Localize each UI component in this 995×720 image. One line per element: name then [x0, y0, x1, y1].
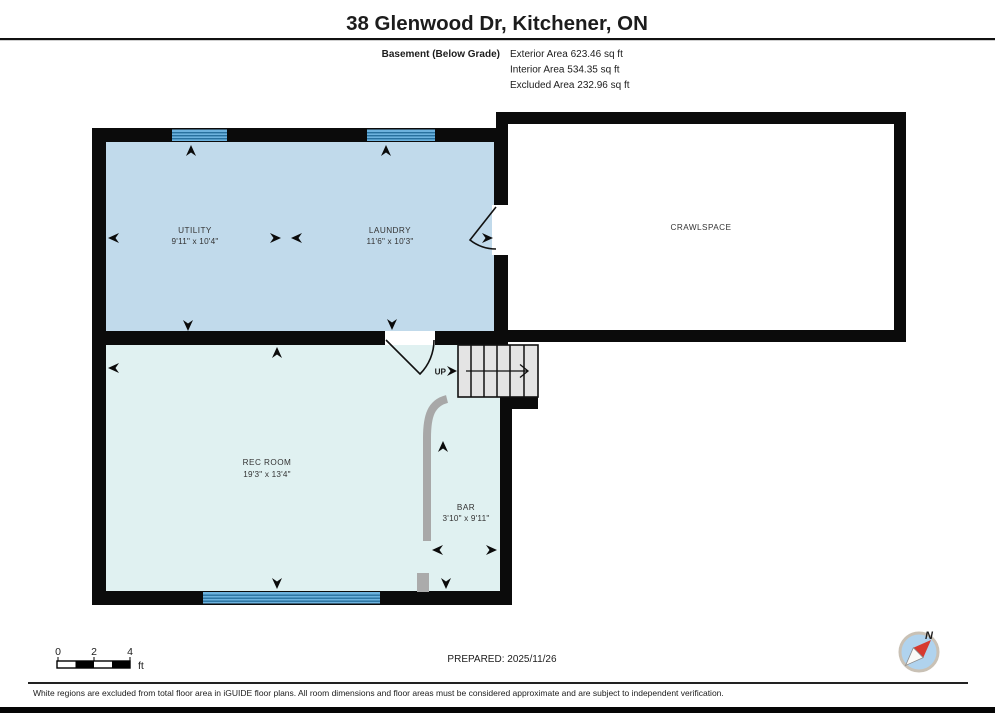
page-title: 38 Glenwood Dr, Kitchener, ON [346, 12, 648, 35]
room-label-bar: BAR [457, 503, 475, 512]
disclaimer-text: White regions are excluded from total fl… [33, 688, 724, 698]
floor-plan-page: 38 Glenwood Dr, Kitchener, ON Basement (… [0, 0, 995, 720]
room-label-laundry: LAUNDRY [369, 226, 411, 235]
prepared-date: PREPARED: 2025/11/26 [447, 654, 557, 665]
floor-label: Basement (Below Grade) [382, 49, 500, 60]
north-label: N [925, 630, 934, 642]
laundry-window [367, 130, 435, 142]
room-dims-laundry: 11'6" x 10'3" [367, 237, 414, 246]
compass: N [900, 630, 938, 671]
scale-tick-4: 4 [127, 646, 133, 658]
rec-room-floor [106, 345, 500, 591]
stairs [458, 345, 538, 397]
floor-plan: UTILITY 9'11" x 10'4" LAUNDRY 11'6" x 10… [92, 112, 906, 605]
utility-window [172, 130, 227, 142]
footer-divider [28, 682, 968, 684]
scale-bar: 0 2 4 ft [55, 646, 144, 672]
header-divider [0, 38, 995, 40]
room-label-utility: UTILITY [178, 226, 212, 235]
utility-laundry-floor [106, 142, 494, 331]
room-label-recroom: REC ROOM [243, 458, 292, 467]
room-dims-bar: 3'10" x 9'11" [443, 514, 490, 523]
excluded-area: Excluded Area 232.96 sq ft [510, 80, 630, 91]
room-dims-utility: 9'11" x 10'4" [172, 237, 219, 246]
scale-tick-0: 0 [55, 646, 61, 658]
room-dims-recroom: 19'3" x 13'4" [243, 470, 291, 479]
up-label: UP [435, 368, 447, 377]
floor-plan-canvas: 38 Glenwood Dr, Kitchener, ON Basement (… [0, 0, 995, 720]
exterior-area: Exterior Area 623.46 sq ft [510, 49, 623, 60]
recroom-window [203, 592, 380, 604]
bottom-border [0, 707, 995, 713]
scale-unit: ft [138, 660, 144, 672]
scale-tick-2: 2 [91, 646, 97, 658]
room-label-crawlspace: CRAWLSPACE [671, 223, 732, 232]
interior-area: Interior Area 534.35 sq ft [510, 65, 620, 76]
